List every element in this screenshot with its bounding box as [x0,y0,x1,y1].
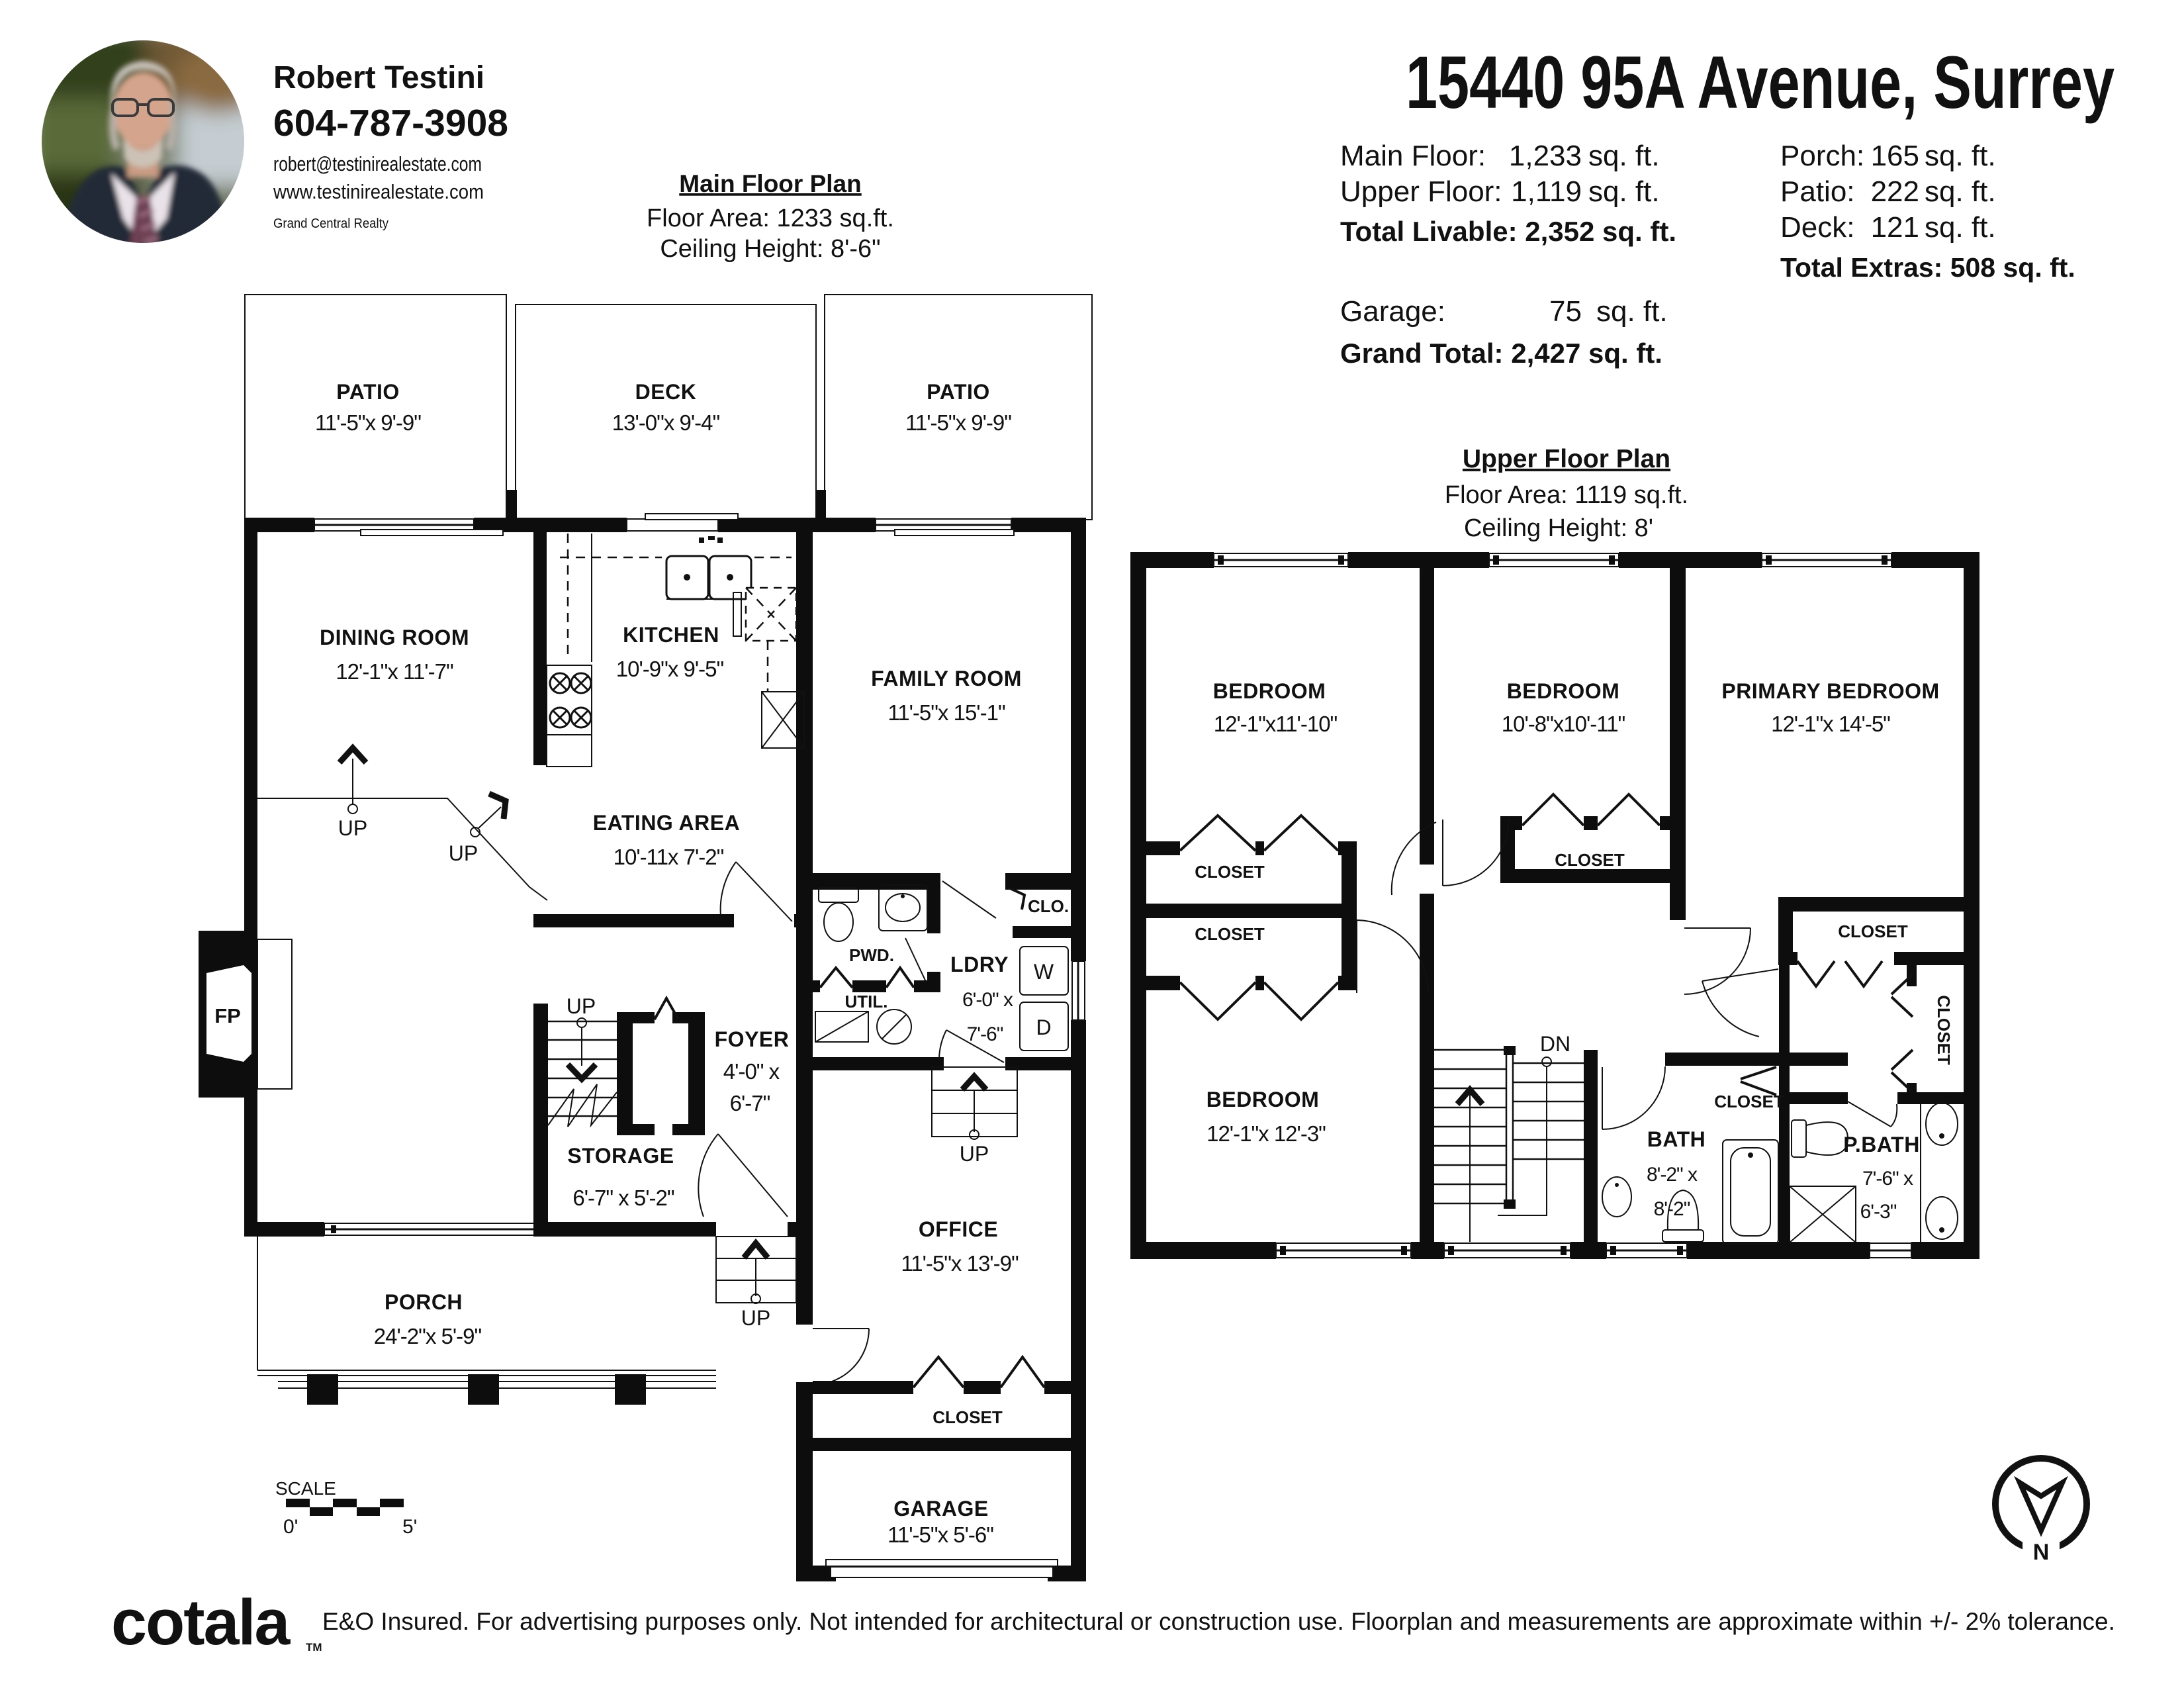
svg-text:24'-2"x 5'-9": 24'-2"x 5'-9" [374,1324,482,1348]
svg-text:5': 5' [402,1516,417,1538]
svg-text:cotala: cotala [111,1586,291,1658]
svg-text:11'-5"x 5'-6": 11'-5"x 5'-6" [887,1523,993,1547]
svg-text:STORAGE: STORAGE [567,1144,674,1168]
svg-text:sq. ft.: sq. ft. [1596,295,1668,328]
svg-text:W: W [1034,960,1054,984]
svg-text:D: D [1036,1015,1051,1039]
svg-text:15440 95A Avenue, Surrey: 15440 95A Avenue, Surrey [1406,41,2115,124]
svg-text:165: 165 [1871,140,1919,172]
svg-text:CLOSET: CLOSET [933,1407,1003,1427]
svg-text:12'-1"x 11'-7": 12'-1"x 11'-7" [336,659,453,684]
svg-text:Main Floor Plan: Main Floor Plan [679,170,861,197]
svg-text:Deck:: Deck: [1780,211,1854,244]
svg-text:Floor Area: 1119 sq.ft.: Floor Area: 1119 sq.ft. [1445,481,1688,509]
svg-text:OFFICE: OFFICE [919,1217,998,1241]
svg-text:11'-5"x 9'-9": 11'-5"x 9'-9" [905,410,1011,435]
svg-text:604-787-3908: 604-787-3908 [273,102,508,144]
svg-text:7'-6": 7'-6" [967,1023,1003,1045]
svg-text:PATIO: PATIO [336,380,400,404]
svg-text:8'-2": 8'-2" [1654,1198,1690,1220]
svg-text:PATIO: PATIO [927,380,990,404]
svg-text:CLOSET: CLOSET [1555,850,1625,870]
svg-text:CLOSET: CLOSET [1838,921,1908,941]
svg-text:10'-11x 7'-2": 10'-11x 7'-2" [614,845,724,869]
svg-text:4'-0" x: 4'-0" x [723,1059,780,1084]
svg-text:12'-1"x 12'-3": 12'-1"x 12'-3" [1206,1121,1326,1146]
svg-text:GARAGE: GARAGE [893,1497,988,1521]
svg-text:UTIL.: UTIL. [845,992,888,1011]
svg-text:DECK: DECK [635,380,697,404]
svg-text:7'-6" x: 7'-6" x [1862,1168,1913,1190]
svg-text:LDRY: LDRY [950,953,1009,976]
svg-text:PWD.: PWD. [849,945,894,965]
svg-text:6'-3": 6'-3" [1860,1201,1897,1223]
svg-text:FAMILY ROOM: FAMILY ROOM [871,667,1022,690]
svg-text:10'-8"x10'-11": 10'-8"x10'-11" [1502,712,1625,736]
svg-text:Grand Total: 2,427 sq. ft.: Grand Total: 2,427 sq. ft. [1340,338,1662,369]
svg-text:E&O Insured. For advertising p: E&O Insured. For advertising purposes on… [322,1608,2115,1635]
svg-text:sq. ft.: sq. ft. [1588,140,1660,172]
svg-text:KITCHEN: KITCHEN [623,623,719,647]
svg-text:UP: UP [449,841,478,865]
svg-text:CLOSET: CLOSET [1195,862,1265,882]
svg-text:6'-7" x 5'-2": 6'-7" x 5'-2" [572,1186,674,1210]
svg-text:121: 121 [1871,211,1919,244]
svg-text:sq. ft.: sq. ft. [1925,175,1996,208]
svg-text:sq. ft.: sq. ft. [1588,175,1660,208]
svg-text:BEDROOM: BEDROOM [1213,679,1326,703]
svg-text:222: 222 [1871,175,1919,208]
svg-text:11'-5"x 9'-9": 11'-5"x 9'-9" [315,410,421,435]
svg-text:sq. ft.: sq. ft. [1925,211,1996,244]
svg-text:Upper Floor Plan: Upper Floor Plan [1463,445,1670,473]
svg-text:Total Extras: 508 sq. ft.: Total Extras: 508 sq. ft. [1780,252,2075,283]
svg-text:CLOSET: CLOSET [1714,1092,1784,1111]
svg-text:UP: UP [567,994,596,1018]
svg-text:1,233: 1,233 [1509,140,1582,172]
svg-text:1,119: 1,119 [1511,175,1582,208]
svg-text:N: N [2033,1540,2050,1565]
svg-text:DINING ROOM: DINING ROOM [320,626,469,649]
svg-text:FP: FP [214,1004,241,1027]
svg-text:robert@testinirealestate.com: robert@testinirealestate.com [273,152,482,175]
svg-text:12'-1"x11'-10": 12'-1"x11'-10" [1214,712,1338,736]
svg-text:Total Livable: 2,352 sq. ft.: Total Livable: 2,352 sq. ft. [1340,216,1676,247]
svg-text:UP: UP [741,1306,770,1330]
svg-text:Grand Central Realty: Grand Central Realty [273,216,388,231]
svg-text:CLOSET: CLOSET [1195,924,1265,944]
svg-text:UP: UP [960,1142,989,1166]
svg-text:0': 0' [283,1516,298,1538]
svg-text:8'-2" x: 8'-2" x [1647,1164,1698,1186]
svg-text:DN: DN [1540,1032,1570,1056]
svg-text:BEDROOM: BEDROOM [1206,1088,1320,1111]
svg-text:BATH: BATH [1647,1127,1706,1151]
svg-text:11'-5"x 13'-9": 11'-5"x 13'-9" [901,1251,1019,1276]
svg-text:6'-0" x: 6'-0" x [962,989,1013,1011]
svg-text:TM: TM [306,1641,322,1654]
svg-text:13'-0"x 9'-4": 13'-0"x 9'-4" [612,410,720,435]
svg-text:6'-7": 6'-7" [730,1091,770,1115]
svg-text:BEDROOM: BEDROOM [1507,679,1620,703]
svg-text:Ceiling Height: 8': Ceiling Height: 8' [1464,514,1653,542]
svg-text:CLOSET: CLOSET [1934,995,1954,1065]
svg-text:10'-9"x 9'-5": 10'-9"x 9'-5" [616,657,724,681]
svg-text:sq. ft.: sq. ft. [1925,140,1996,172]
svg-text:Main Floor:: Main Floor: [1340,140,1486,172]
svg-text:Ceiling Height: 8'-6": Ceiling Height: 8'-6" [660,235,880,263]
svg-text:UP: UP [338,816,367,840]
svg-text:Porch:: Porch: [1780,140,1864,172]
svg-text:EATING AREA: EATING AREA [593,811,740,835]
svg-text:SCALE: SCALE [275,1478,336,1499]
svg-text:www.testinirealestate.com: www.testinirealestate.com [273,180,484,203]
svg-text:CLO.: CLO. [1028,896,1069,916]
svg-text:Robert Testini: Robert Testini [273,60,484,95]
svg-text:11'-5"x 15'-1": 11'-5"x 15'-1" [887,700,1005,725]
svg-text:Garage:: Garage: [1340,295,1445,328]
svg-text:Floor Area: 1233 sq.ft.: Floor Area: 1233 sq.ft. [647,205,894,232]
svg-text:Upper Floor:: Upper Floor: [1340,175,1502,208]
svg-text:P.BATH: P.BATH [1843,1133,1920,1156]
svg-text:Patio:: Patio: [1780,175,1855,208]
svg-text:12'-1"x 14'-5": 12'-1"x 14'-5" [1771,712,1890,736]
svg-text:PORCH: PORCH [385,1290,463,1314]
svg-text:75: 75 [1549,295,1582,328]
svg-text:FOYER: FOYER [715,1027,790,1051]
svg-text:PRIMARY BEDROOM: PRIMARY BEDROOM [1721,679,1939,703]
